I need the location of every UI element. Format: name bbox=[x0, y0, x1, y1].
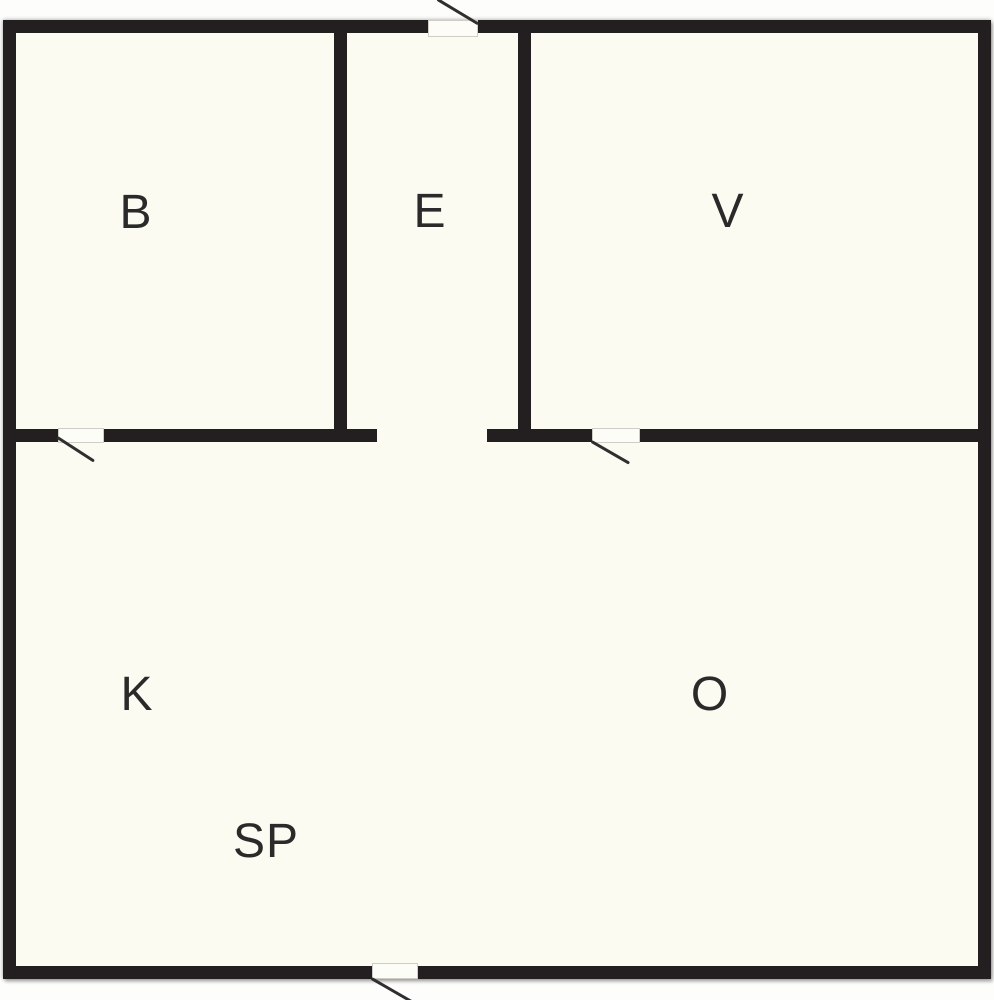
outer-wall-left bbox=[3, 20, 16, 979]
partition-wall-e-v bbox=[518, 33, 531, 442]
door-threshold-entrance-top bbox=[428, 20, 478, 37]
outer-wall-top-left-segment bbox=[3, 20, 428, 33]
partition-wall-mid-segment-1 bbox=[15, 429, 58, 442]
door-threshold-exit-bottom bbox=[372, 963, 418, 979]
room-label-v: V bbox=[711, 188, 744, 236]
partition-wall-mid-segment-3 bbox=[487, 429, 592, 442]
room-label-e: E bbox=[413, 188, 446, 236]
partition-wall-b-e bbox=[334, 33, 347, 442]
outer-wall-top-right-segment bbox=[478, 20, 991, 33]
room-label-k: K bbox=[120, 671, 153, 719]
outer-wall-right bbox=[978, 20, 991, 979]
room-b bbox=[16, 33, 334, 429]
floor-plan: B E V K O SP bbox=[0, 0, 994, 1000]
partition-wall-mid-segment-2 bbox=[104, 429, 377, 442]
door-threshold-room-o bbox=[592, 428, 640, 443]
room-label-b: B bbox=[119, 189, 152, 237]
room-k-o-sp bbox=[16, 442, 978, 966]
room-label-sp: SP bbox=[233, 818, 299, 866]
room-label-o: O bbox=[691, 671, 729, 719]
outer-wall-bottom-right-segment bbox=[418, 966, 991, 979]
outer-wall-bottom-left-segment bbox=[3, 966, 372, 979]
room-v bbox=[531, 33, 978, 429]
partition-wall-mid-segment-4 bbox=[640, 429, 978, 442]
door-swing-exit-bottom bbox=[371, 977, 413, 1000]
